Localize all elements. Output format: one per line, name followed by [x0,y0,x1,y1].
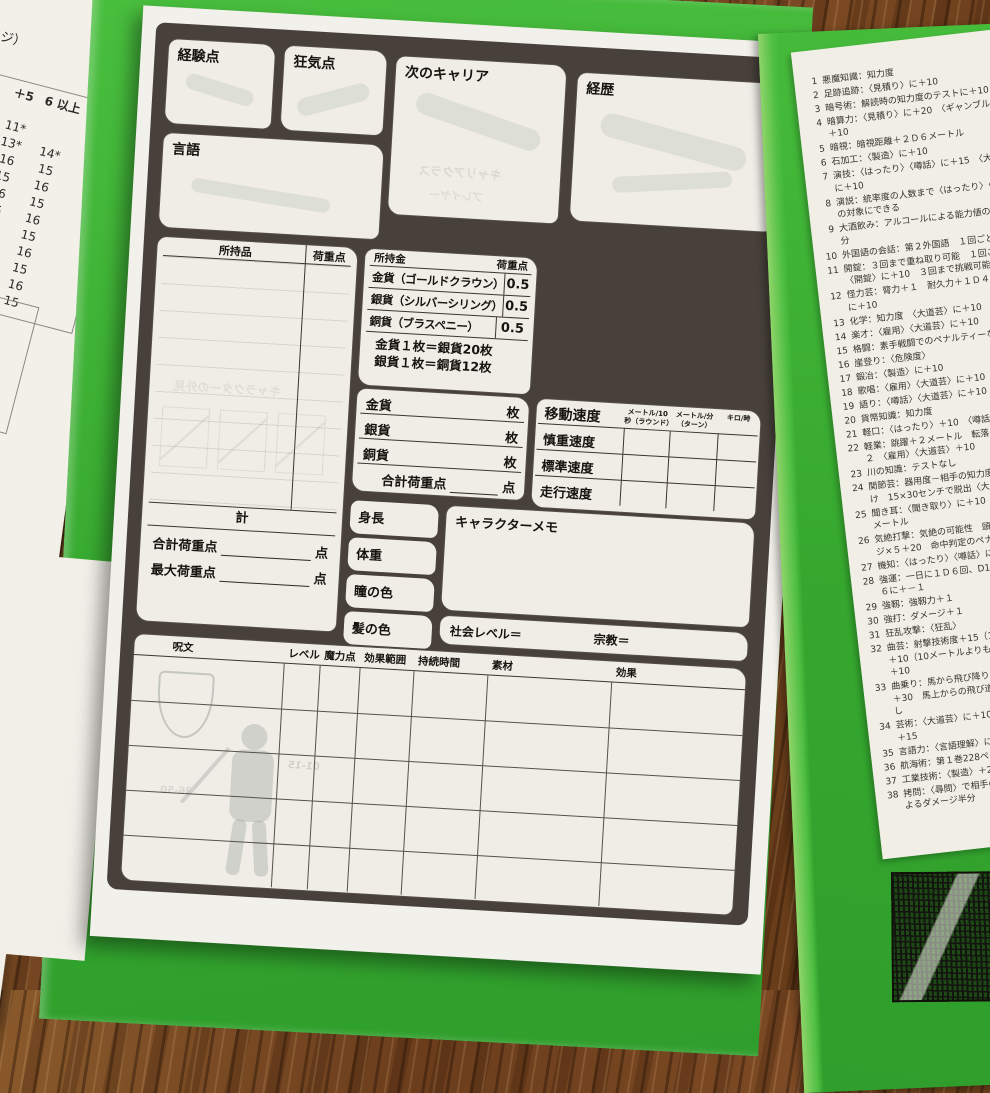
skill-number: 20 [842,414,856,428]
skill-number: 6 [813,157,827,171]
ghost-box [159,406,210,469]
movement-value-cell [668,430,717,459]
movement-value-cell [619,480,666,509]
skill-number: 3 [807,103,821,117]
experience-points-box: 経験点 [165,39,276,129]
coin-count-unit: 枚 [505,427,519,447]
money-rows: 金貨（ゴールドクラウン）0.5銀貨（シルバーシリング）0.5銅貨（ブラスペニー）… [366,266,532,341]
physical-stats: 身長体重瞳の色髪の色 [343,500,439,651]
watermark-figure-head [241,723,268,750]
next-career-box: 次のキャリア キャリアクラス プレイヤー [388,56,567,224]
spell-col-header: 素材 [492,658,514,674]
movement-value-cell [622,428,669,457]
movement-col-header: メートル/10秒（ラウンド） [624,404,671,431]
spell-grid-vline [347,668,361,892]
skill-number: 1 [804,75,818,89]
religion-label: 宗教＝ [593,630,738,655]
skill-number: 27 [859,561,873,575]
character-sheet: 経験点 狂気点 次のキャリア キャリアクラス プレイヤー 経歴 言語 所持品 [90,5,815,974]
movement-box: 移動速度メートル/10秒（ラウンド）メートル/分（ターン）キロ/時慎重速度標準速… [531,399,761,520]
physical-box-1: 体重 [347,537,437,575]
skill-number: 23 [848,468,862,482]
ghost-artwork [612,171,733,193]
skill-number: 14 [833,331,847,345]
money-weight-col: 荷重点 [496,257,528,274]
coin-total-unit: 点 [502,477,516,497]
skill-number: 29 [864,601,878,615]
language-box: 言語 [159,133,384,240]
spell-grid-hline [129,745,740,781]
skill-number: 19 [841,400,855,414]
money-coin-weight: 0.5 [502,296,530,319]
ghost-artwork [598,111,749,174]
skills-list: 1悪魔知識：知力度2足跡追跡：〈見積り〉に＋103暗号術：解読時の知力度のテスト… [804,54,990,815]
spell-grid-vline [474,675,488,899]
coin-count-label: 金貨 [365,394,392,414]
ghost-artwork [413,90,543,154]
watermark-player: プレイヤー [429,186,485,205]
max-weight-blank [219,563,310,587]
skill-number: 17 [838,372,852,386]
spell-col-header: 効果範囲 [364,650,407,667]
skill-number: 18 [839,386,853,400]
ghost-artwork [190,177,330,213]
coin-count-label: 銀貨 [364,419,391,439]
movement-value-cell [713,485,754,513]
skill-number: 22 [845,442,859,456]
skill-number: 37 [883,775,897,789]
spells-grid: 01-15 36-50 [121,655,745,914]
coin-count-label: 銅貨 [362,444,389,464]
spells-box: 呪文レベル魔力点効果範囲持続時間素材効果 01-15 36-50 [121,634,746,915]
gm-screen-right-panel: 1悪魔知識：知力度2足跡追跡：〈見積り〉に＋103暗号術：解読時の知力度のテスト… [758,16,990,1093]
movement-table: 移動速度メートル/10秒（ラウンド）メートル/分（ターン）キロ/時慎重速度標準速… [534,399,760,513]
skill-number: 9 [821,224,835,238]
skill-number: 32 [868,643,882,657]
character-sheet-printed-plate: 経験点 狂気点 次のキャリア キャリアクラス プレイヤー 経歴 言語 所持品 [106,22,797,926]
skill-number: 13 [831,317,845,331]
money-coin-weight: 0.5 [495,317,529,340]
coin-count-unit: 枚 [503,452,517,472]
coin-total-label: 合計荷重点 [381,470,447,493]
experience-points-label: 経験点 [168,39,275,70]
skill-number: 4 [808,117,822,131]
possessions-weight-col: 荷重点 [307,247,352,266]
skill-number: 30 [865,615,879,629]
coin-count-unit: 枚 [506,402,520,422]
watermark-career-class: キャリアクラス [418,162,502,184]
coin-total-blank [450,474,499,496]
money-coin-weight: 0.5 [503,274,531,297]
total-weight-unit: 点 [315,542,329,562]
coin-count-rows: 金貨枚銀貨枚銅貨枚 [357,389,525,473]
skill-number: 33 [873,682,887,696]
spell-col-header: 魔力点 [324,648,356,665]
possessions-list-area: キャラクターの外見 [149,256,351,513]
skill-number: 10 [824,250,838,264]
total-weight-label: 合計荷重点 [152,533,218,556]
watermark-figure-leg [252,820,269,877]
skill-number: 24 [850,482,864,496]
physical-label: 身長 [350,500,439,530]
bottom-right-illustration [891,871,990,1002]
skill-number: 38 [885,789,899,803]
skill-number: 34 [877,721,891,735]
spell-grid-hline [124,835,735,871]
possessions-box: 所持品 荷重点 キャラクターの外見 計 合計荷重点 点 最大荷重点 点 [136,237,358,632]
movement-value-cell [716,433,757,461]
money-title: 所持金 [374,250,406,267]
skill-number: 12 [828,290,842,304]
history-box: 経歴 [570,73,780,232]
skill-number: 28 [861,575,875,589]
social-level-label: 社会レベル＝ [449,622,594,647]
spell-grid-vline [307,666,321,890]
physical-label: 体重 [348,537,437,567]
spell-grid-vline [598,682,612,906]
skill-number: 21 [844,428,858,442]
spell-col-header: レベル [288,646,320,663]
character-memo-box: キャラクターメモ [441,506,754,628]
movement-value-cell [665,482,714,511]
watermark-figure-leg [225,818,248,876]
insanity-points-box: 狂気点 [280,46,387,136]
ghost-box [275,413,326,476]
movement-col-header: キロ/時 [718,409,759,435]
ghost-artwork [295,81,371,117]
spell-col-header: 呪文 [172,639,194,655]
ghost-box [217,410,268,473]
spell-col-header: 持続時間 [418,653,461,670]
spell-grid-hline [126,790,737,826]
ghost-artwork [184,72,256,108]
language-label: 言語 [163,133,384,171]
history-label: 経歴 [577,73,780,110]
physical-label: 髪の色 [343,611,432,641]
skill-number: 5 [811,143,825,157]
movement-row-label: 走行速度 [534,475,621,506]
physical-box-2: 瞳の色 [345,574,435,612]
skill-number: 36 [882,761,896,775]
max-weight-unit: 点 [313,568,327,588]
skill-number: 2 [805,89,819,103]
movement-col-header: メートル/分（ターン） [670,406,719,433]
skills-reference-sheet: 1悪魔知識：知力度2足跡追跡：〈見積り〉に＋103暗号術：解読時の知力度のテスト… [791,28,990,859]
insanity-points-label: 狂気点 [284,46,387,77]
spell-grid-hline [131,700,742,736]
max-weight-label: 最大荷重点 [150,559,216,582]
money-box: 所持金 荷重点 金貨（ゴールドクラウン）0.5銀貨（シルバーシリング）0.5銅貨… [358,249,538,395]
movement-value-cell [715,459,756,487]
skill-number: 25 [853,509,867,523]
watermark-range: 01-15 [288,760,321,773]
skill-number: 16 [836,358,850,372]
skill-number: 15 [834,345,848,359]
movement-value-cell [667,456,716,485]
skill-number: 11 [825,264,839,278]
watermark-figure-torso [229,749,275,823]
skill-number: 31 [867,629,881,643]
spell-col-header: 効果 [615,665,637,681]
physical-box-3: 髪の色 [343,611,433,649]
skill-number: 26 [856,535,870,549]
physical-box-0: 身長 [349,500,439,538]
next-career-label: 次のキャリア [395,56,566,91]
physical-label: 瞳の色 [346,574,435,604]
skill-number: 8 [818,198,832,212]
skill-number: 35 [880,747,894,761]
movement-value-cell [621,454,668,483]
coin-count-box: 金貨枚銀貨枚銅貨枚 合計荷重点 点 [352,388,530,500]
spell-grid-vline [401,671,415,895]
skill-number: 7 [815,171,829,185]
